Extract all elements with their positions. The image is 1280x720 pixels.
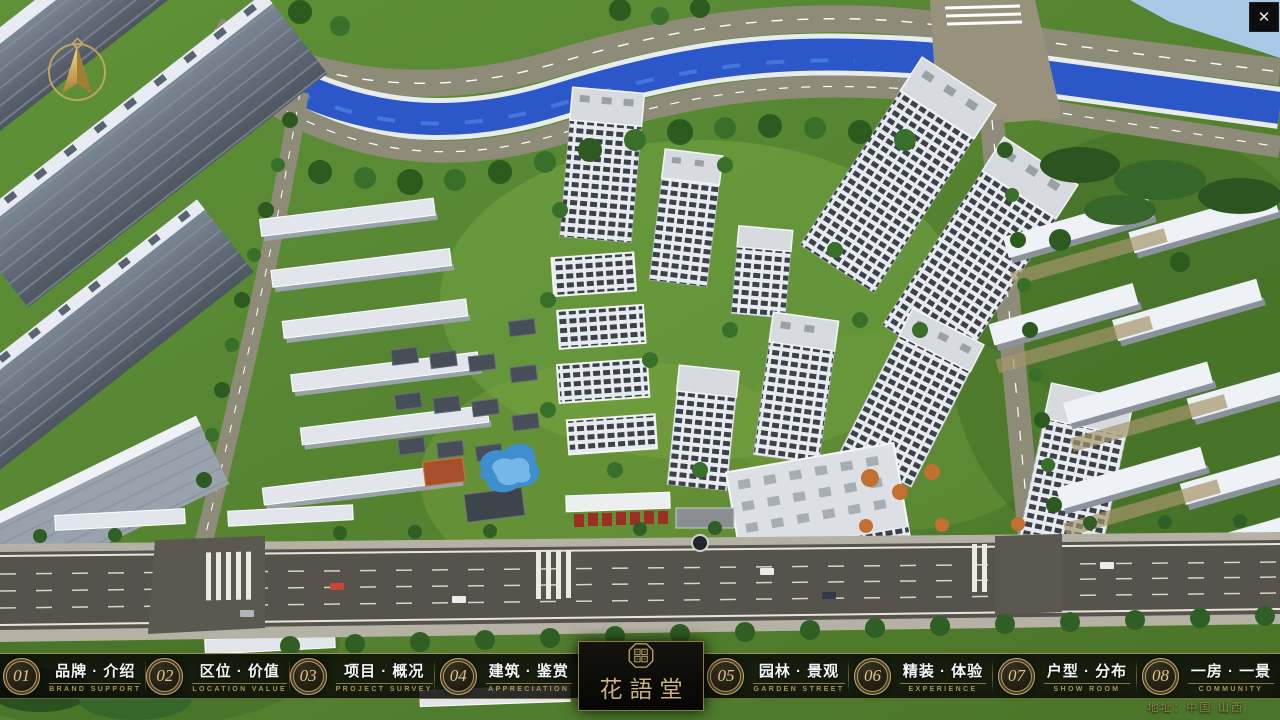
- nav-item-label-en: LOCATION VALUE: [192, 683, 287, 693]
- nav-group-left: 01 品牌 · 介绍 BRAND SUPPORT 02 区位 · 价值 LOCA…: [0, 653, 578, 699]
- nav-group-right: 05 园林 · 景观 GARDEN STREET 06 精装 · 体验 EXPE…: [704, 653, 1280, 699]
- seal-icon: [626, 642, 656, 669]
- nav-item-location[interactable]: 02 区位 · 价值 LOCATION VALUE: [145, 654, 290, 698]
- nav-item-texts: 区位 · 价值 LOCATION VALUE: [192, 660, 287, 693]
- nav-item-label-en: COMMUNITY: [1188, 683, 1274, 693]
- project-logo[interactable]: 花語堂 · · · · · · · · ·: [578, 641, 704, 711]
- nav-item-label-zh: 精装 · 体验: [903, 660, 983, 681]
- nav-item-label-en: EXPERIENCE: [900, 683, 986, 693]
- nav-item-label-en: APPRECIATION: [486, 683, 572, 693]
- main-road: [0, 532, 1280, 642]
- nav-number-badge: 04: [440, 658, 477, 695]
- nav-item-label-zh: 一房 · 一景: [1191, 660, 1271, 681]
- nav-item-views[interactable]: 08 一房 · 一景 COMMUNITY: [1136, 654, 1280, 698]
- project-name-subtext: · · · · · · · · ·: [611, 705, 671, 710]
- nav-number-badge: 01: [3, 658, 40, 695]
- nav-item-label-zh: 园林 · 景观: [759, 660, 839, 681]
- nav-number-badge: 06: [854, 658, 891, 695]
- nav-item-label-zh: 户型 · 分布: [1047, 660, 1127, 681]
- nav-item-texts: 品牌 · 介绍 BRAND SUPPORT: [49, 660, 141, 693]
- nav-item-interior[interactable]: 06 精装 · 体验 EXPERIENCE: [848, 654, 992, 698]
- nav-number-badge: 05: [707, 658, 744, 695]
- nav-item-texts: 一房 · 一景 COMMUNITY: [1188, 660, 1274, 693]
- nav-item-label-zh: 品牌 · 介绍: [55, 660, 135, 681]
- nav-item-brand[interactable]: 01 品牌 · 介绍 BRAND SUPPORT: [0, 654, 145, 698]
- nav-item-texts: 园林 · 景观 GARDEN STREET: [753, 660, 844, 693]
- project-name: 花語堂: [593, 670, 690, 704]
- nav-item-project[interactable]: 03 项目 · 概况 PROJECT SURVEY: [289, 654, 434, 698]
- nav-item-floorplan[interactable]: 07 户型 · 分布 SHOW ROOM: [992, 654, 1136, 698]
- nav-item-texts: 精装 · 体验 EXPERIENCE: [900, 660, 986, 693]
- bottom-nav: 01 品牌 · 介绍 BRAND SUPPORT 02 区位 · 价值 LOCA…: [0, 653, 1280, 699]
- nav-item-label-zh: 项目 · 概况: [344, 660, 424, 681]
- project-address: 地址：中国·山西: [1147, 699, 1244, 715]
- nav-item-texts: 建筑 · 鉴赏 APPRECIATION: [486, 660, 572, 693]
- nav-item-texts: 户型 · 分布 SHOW ROOM: [1044, 660, 1130, 693]
- nav-item-texts: 项目 · 概况 PROJECT SURVEY: [336, 660, 433, 693]
- nav-item-label-en: SHOW ROOM: [1044, 683, 1130, 693]
- nav-item-garden[interactable]: 05 园林 · 景观 GARDEN STREET: [704, 654, 848, 698]
- nav-item-label-zh: 区位 · 价值: [200, 660, 280, 681]
- nav-number-badge: 03: [290, 658, 327, 695]
- nav-number-badge: 02: [146, 658, 183, 695]
- nav-item-label-en: GARDEN STREET: [753, 683, 844, 693]
- nav-number-badge: 07: [998, 658, 1035, 695]
- nav-item-label-en: PROJECT SURVEY: [336, 683, 433, 693]
- close-button[interactable]: ✕: [1249, 2, 1279, 32]
- aerial-scene[interactable]: [0, 0, 1280, 720]
- nav-number-badge: 08: [1142, 658, 1179, 695]
- nav-item-architecture[interactable]: 04 建筑 · 鉴赏 APPRECIATION: [434, 654, 579, 698]
- nav-item-label-en: BRAND SUPPORT: [49, 683, 141, 693]
- nav-item-label-zh: 建筑 · 鉴赏: [489, 660, 569, 681]
